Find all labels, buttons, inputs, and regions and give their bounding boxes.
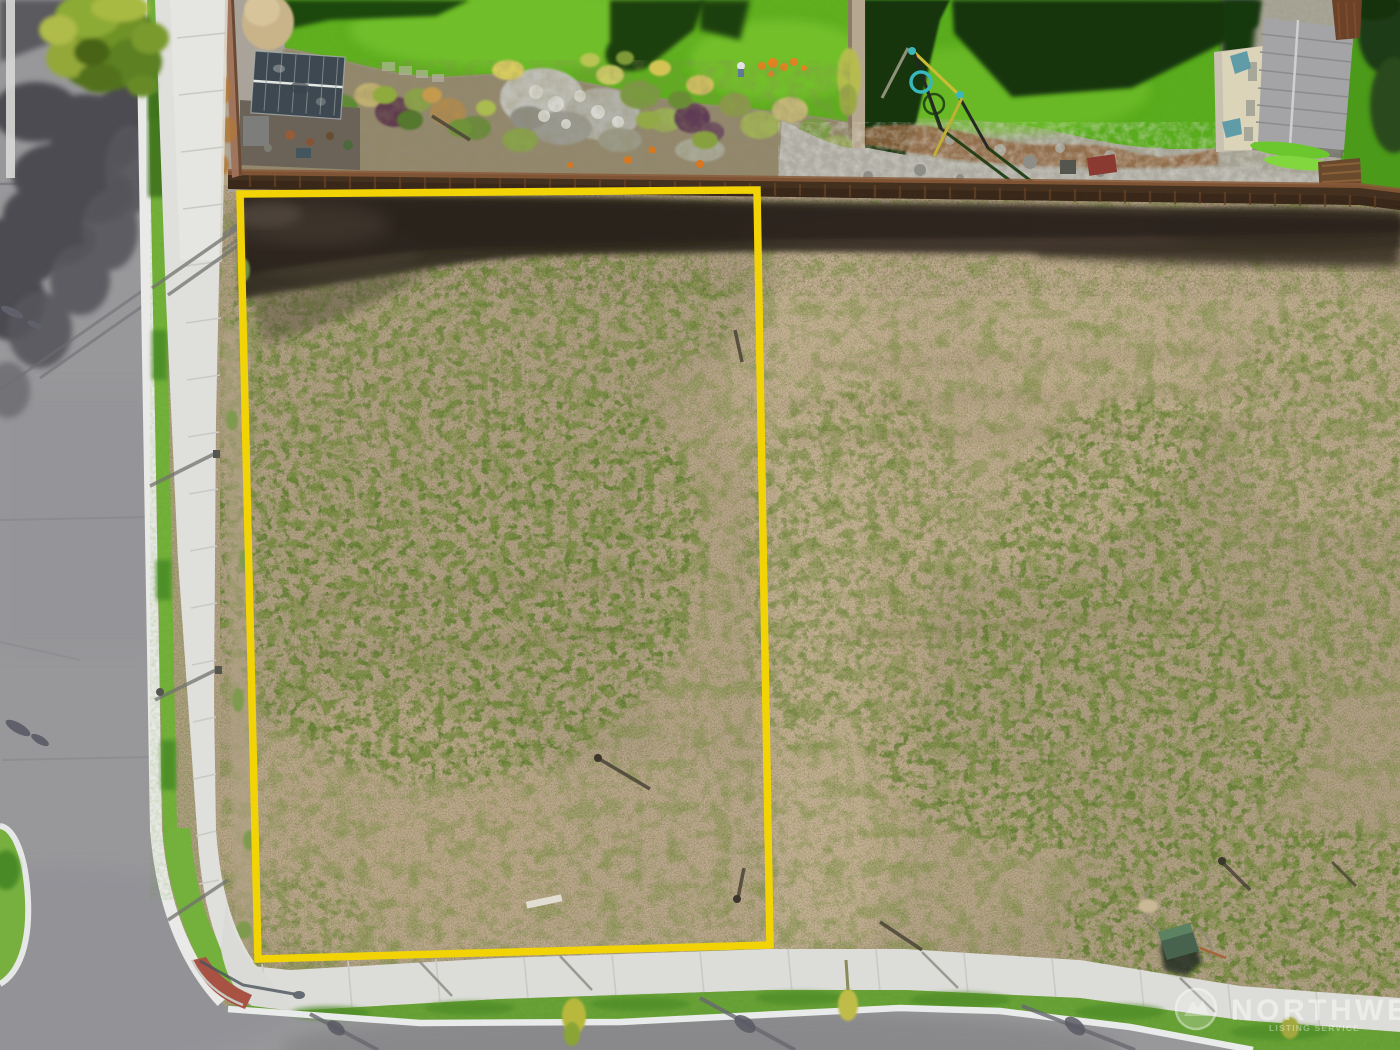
svg-text:LISTING SERVICE: LISTING SERVICE xyxy=(1269,1023,1360,1033)
